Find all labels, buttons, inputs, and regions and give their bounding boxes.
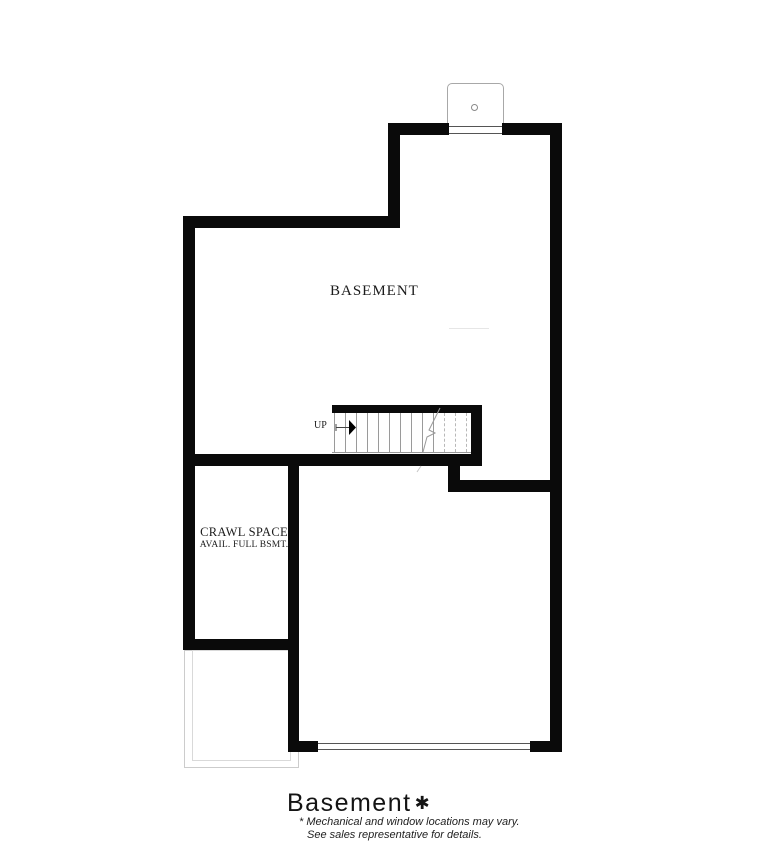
wall-upper-horizontal bbox=[183, 216, 400, 228]
wall-middle-horizontal bbox=[183, 454, 482, 466]
wall-upper-left-vertical bbox=[388, 123, 400, 228]
stair-tread bbox=[345, 413, 346, 452]
disclaimer-line-1: * Mechanical and window locations may va… bbox=[299, 816, 520, 828]
faint-ghost-line bbox=[449, 328, 489, 329]
basement-floor-plan: BASEMENT CRAWL SPACE AVAIL. FULL BSMT. U… bbox=[0, 0, 763, 863]
wall-bottom-right-segment bbox=[530, 741, 562, 752]
stair-top-wall bbox=[332, 405, 482, 413]
wall-crawl-bottom bbox=[183, 639, 299, 650]
stair-tread bbox=[356, 413, 357, 452]
stair-tread bbox=[389, 413, 390, 452]
basement-room-label: BASEMENT bbox=[330, 283, 419, 300]
plan-title: Basement bbox=[287, 789, 412, 818]
stair-tread bbox=[433, 413, 434, 452]
porch-outline-inner bbox=[192, 650, 291, 761]
stair-tread bbox=[367, 413, 368, 452]
crawl-space-label-block: CRAWL SPACE AVAIL. FULL BSMT. bbox=[188, 526, 300, 551]
wall-right bbox=[550, 123, 562, 752]
up-arrow-head-icon bbox=[349, 420, 356, 435]
stair-bottom-line bbox=[332, 452, 471, 453]
plan-title-block: Basement ✱ bbox=[287, 789, 430, 818]
wall-jog-horizontal bbox=[448, 480, 562, 492]
bottom-window bbox=[318, 743, 530, 750]
asterisk-icon: ✱ bbox=[415, 793, 430, 814]
stair-tread bbox=[334, 413, 335, 452]
stair-tread bbox=[422, 413, 423, 452]
stair-tread-overhead bbox=[466, 413, 468, 452]
top-window bbox=[449, 126, 502, 134]
stair-tread bbox=[411, 413, 412, 452]
stair-break-line bbox=[423, 408, 440, 452]
stair-annotation-overlay bbox=[0, 0, 763, 863]
stair-break-line-tail bbox=[417, 466, 421, 472]
wall-bottom-left-segment bbox=[288, 741, 318, 752]
mechanical-unit-knob-icon bbox=[471, 104, 478, 111]
stair-tread bbox=[400, 413, 401, 452]
crawl-space-label: CRAWL SPACE bbox=[188, 526, 300, 540]
disclaimer-line-2: See sales representative for details. bbox=[307, 829, 482, 841]
crawl-space-sublabel: AVAIL. FULL BSMT. bbox=[188, 540, 300, 551]
wall-left bbox=[183, 216, 195, 650]
stairs-up-label: UP bbox=[314, 420, 327, 431]
stair-tread-overhead bbox=[444, 413, 446, 452]
stair-right-wall bbox=[471, 405, 482, 455]
stair-tread bbox=[378, 413, 379, 452]
wall-middle-vertical bbox=[288, 455, 299, 752]
stair-tread-overhead bbox=[455, 413, 457, 452]
